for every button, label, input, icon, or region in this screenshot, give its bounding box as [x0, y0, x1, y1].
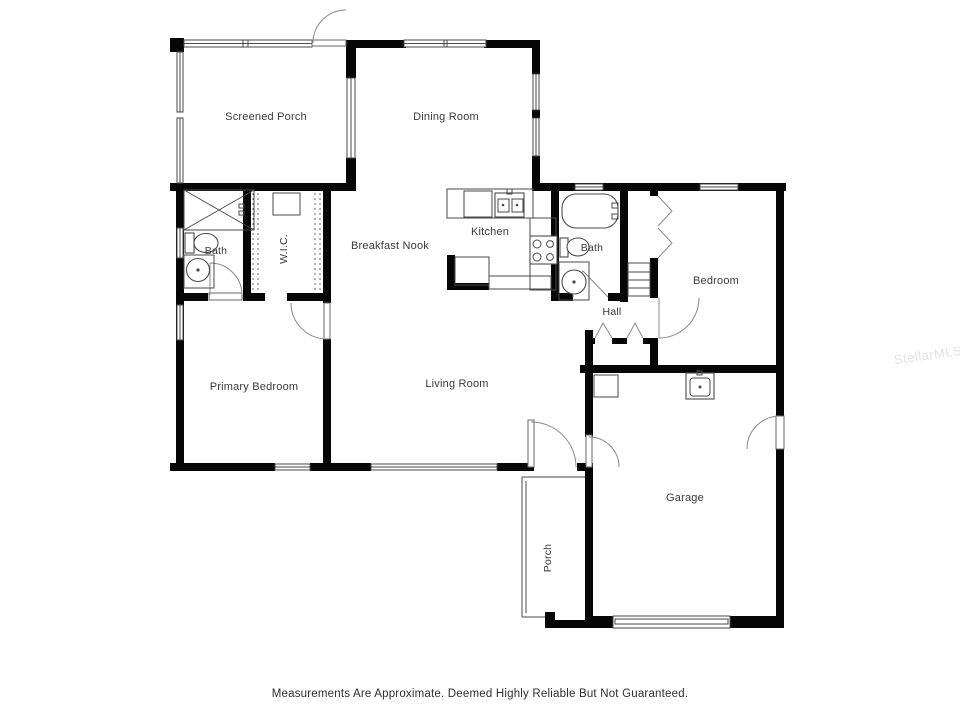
room-label-dining-room: Dining Room: [413, 111, 479, 123]
room-label-bedroom: Bedroom: [693, 275, 739, 287]
room-label-breakfast-nook: Breakfast Nook: [351, 240, 429, 252]
room-label-primary-bedroom: Primary Bedroom: [210, 381, 299, 393]
fixtures: [184, 189, 714, 617]
room-label-kitchen: Kitchen: [471, 226, 509, 238]
room-label-garage: Garage: [666, 492, 704, 504]
walls: [170, 38, 786, 628]
room-label-porch: Porch: [542, 544, 554, 572]
room-label-screened-porch: Screened Porch: [225, 111, 307, 123]
windows: [177, 40, 738, 628]
kitchen-sink-fixture: [495, 189, 524, 217]
bathtub-fixture: [562, 194, 618, 228]
utility-sink-fixture: [686, 371, 714, 399]
disclaimer-text: Measurements Are Approximate. Deemed Hig…: [272, 688, 688, 700]
room-label-bath-2: Bath: [581, 242, 603, 254]
room-label-hall: Hall: [603, 306, 622, 318]
stove-fixture: [530, 236, 557, 264]
room-label-wic: W.I.C.: [278, 234, 290, 264]
floorplan-page: Screened Porch Dining Room Breakfast Noo…: [0, 0, 960, 720]
room-label-living-room: Living Room: [425, 378, 488, 390]
floorplan-drawing: [0, 0, 960, 720]
water-heater-fixture: [594, 375, 618, 397]
room-label-bath-1: Bath: [205, 245, 227, 257]
linen-shelves: [628, 263, 650, 296]
